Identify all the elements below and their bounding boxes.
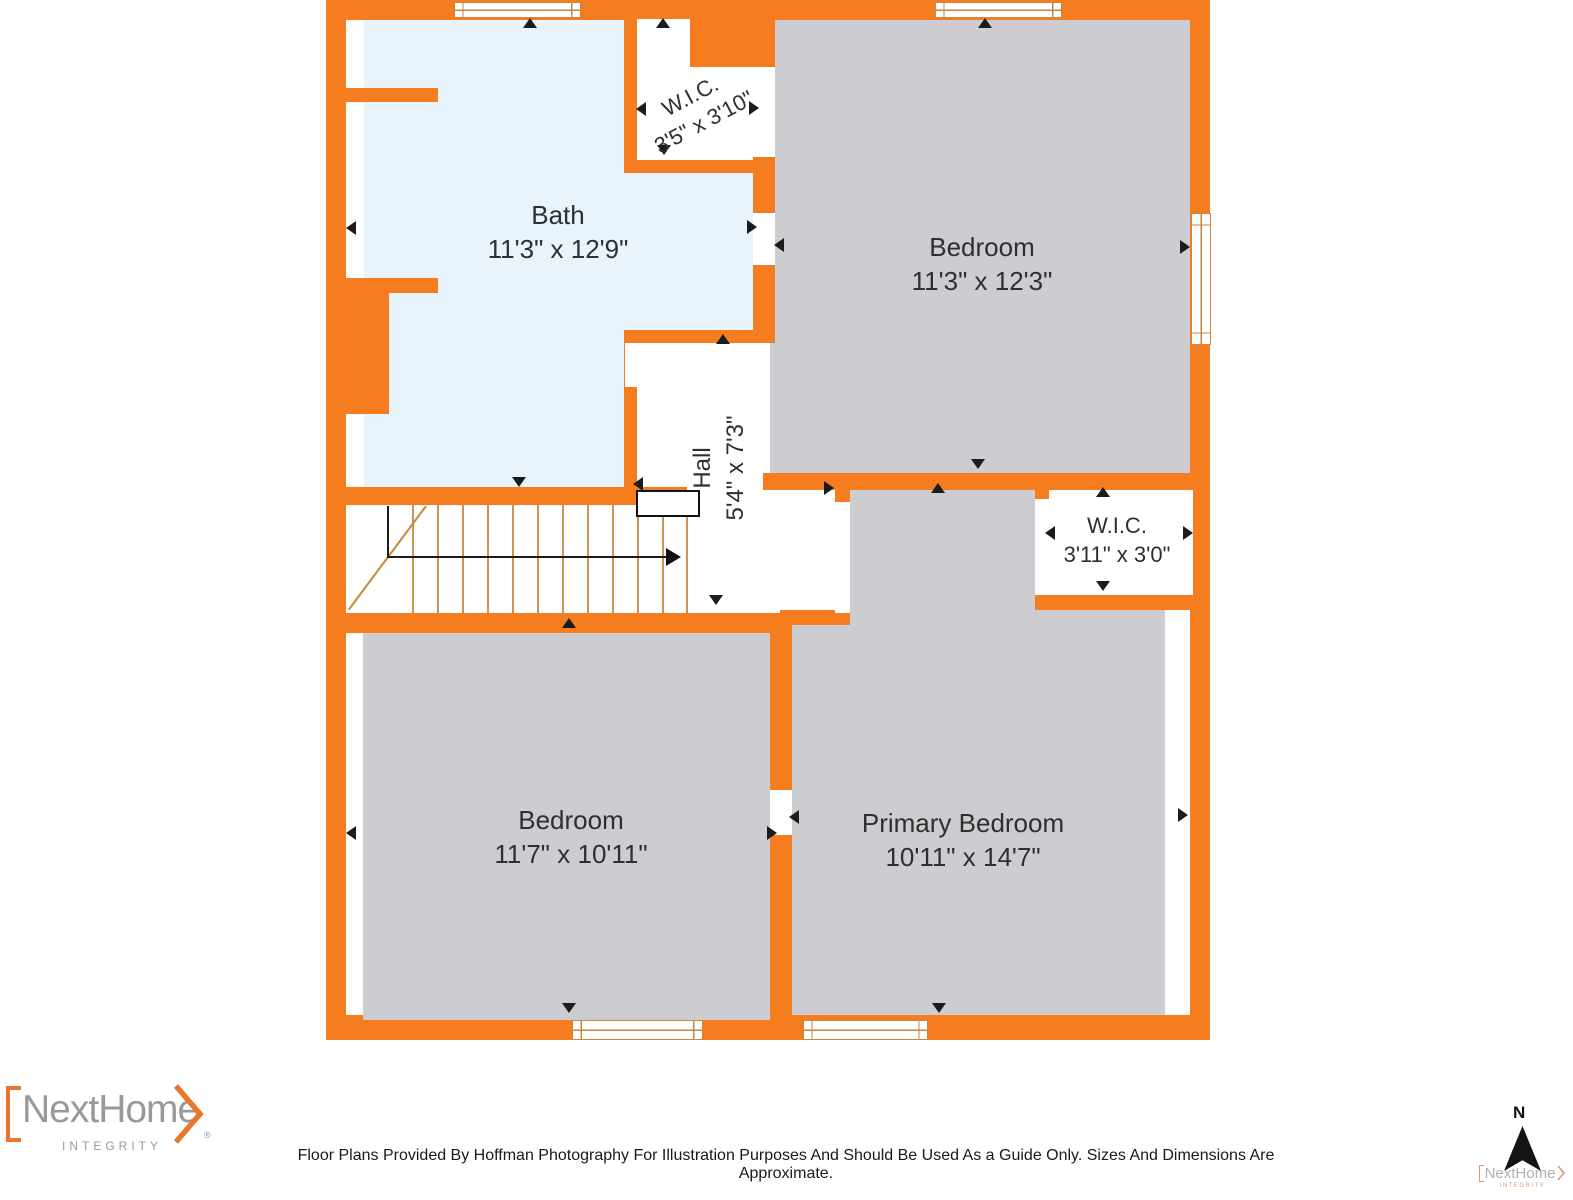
- stair-tread: [537, 505, 539, 613]
- stair-tread: [462, 505, 464, 613]
- logo-bracket-icon: [6, 1086, 21, 1142]
- wall-offset: [346, 633, 363, 1015]
- window-symbol: [803, 1020, 928, 1040]
- door-direction-arrow: [774, 238, 784, 252]
- door-direction-arrow: [346, 221, 356, 235]
- door-direction-arrow: [562, 1003, 576, 1013]
- door-direction-arrow: [931, 483, 945, 493]
- door-direction-arrow: [932, 1003, 946, 1013]
- door-direction-arrow: [633, 477, 643, 491]
- door-direction-arrow: [512, 477, 526, 487]
- wall-segment: [346, 88, 438, 102]
- door-direction-arrow: [767, 826, 777, 840]
- stair-direction-arrowhead: [666, 548, 681, 566]
- window-symbol: [454, 2, 581, 18]
- door-direction-arrow: [716, 334, 730, 344]
- room-dims: 11'7" x 10'11": [421, 837, 721, 871]
- stair-tread: [437, 505, 439, 613]
- stair-tread: [637, 505, 639, 613]
- room-label-bedroom-bl: Bedroom 11'7" x 10'11": [421, 803, 721, 871]
- room-label-bath: Bath 11'3" x 12'9": [408, 198, 708, 266]
- room-label-primary-bedroom: Primary Bedroom 10'11" x 14'7": [813, 806, 1113, 874]
- wall-segment: [753, 265, 775, 330]
- room-name: Primary Bedroom: [813, 806, 1113, 840]
- room-label-wic-right: W.I.C. 3'11" x 3'0": [987, 511, 1247, 569]
- stairs-floor: [346, 505, 687, 613]
- wall-segment: [1035, 595, 1190, 610]
- stair-tread: [562, 505, 564, 613]
- wall-segment: [753, 157, 775, 213]
- door-direction-arrow: [562, 618, 576, 628]
- watermark-tagline: INTEGRITY: [1472, 1183, 1573, 1189]
- room-dims: 11'3" x 12'3": [832, 264, 1132, 298]
- door-opening: [835, 502, 850, 613]
- nexthome-watermark: NextHome INTEGRITY: [1472, 1164, 1573, 1189]
- floor-plan-page: Bath 11'3" x 12'9" W.I.C. 3'5" x 3'10" B…: [0, 0, 1573, 1200]
- logo-chevron-icon: [172, 1082, 206, 1146]
- watermark-brand-text: NextHome: [1485, 1165, 1556, 1182]
- door-direction-arrow: [523, 18, 537, 28]
- door-direction-arrow: [824, 481, 834, 495]
- window-symbol: [935, 2, 1062, 18]
- wall-segment: [835, 490, 850, 502]
- watermark-chevron-icon: [1556, 1164, 1566, 1182]
- wall-segment: [625, 330, 775, 343]
- room-name: Bath: [408, 198, 708, 232]
- wall-segment: [625, 387, 637, 490]
- door-direction-arrow: [1096, 581, 1110, 591]
- window-symbol: [572, 1020, 703, 1040]
- door-direction-arrow: [747, 220, 757, 234]
- door-direction-arrow: [1178, 808, 1188, 822]
- door-direction-arrow: [346, 826, 356, 840]
- logo-tagline: INTEGRITY: [62, 1139, 162, 1153]
- stair-line: [387, 506, 389, 557]
- floor-plan: [0, 0, 1573, 1200]
- door-direction-arrow: [1180, 240, 1190, 254]
- watermark-bracket-icon: [1479, 1165, 1484, 1182]
- door-direction-arrow: [978, 18, 992, 28]
- door-direction-arrow: [971, 459, 985, 469]
- compass-north-label: N: [1513, 1103, 1525, 1123]
- door-direction-arrow: [709, 595, 723, 605]
- stair-tread: [487, 505, 489, 613]
- room-name: Hall: [686, 358, 719, 578]
- room-label-hall: Hall 5'4" x 7'3": [686, 358, 752, 578]
- stair-tread: [662, 505, 664, 613]
- door-direction-arrow: [1096, 487, 1110, 497]
- room-name: Bedroom: [832, 230, 1132, 264]
- window-symbol: [1191, 213, 1211, 345]
- stair-tread: [512, 505, 514, 613]
- door-direction-arrow: [656, 18, 670, 28]
- room-name: Bedroom: [421, 803, 721, 837]
- stair-direction-line: [387, 556, 668, 558]
- wall-segment: [1035, 490, 1049, 499]
- room-dims: 3'11" x 3'0": [987, 540, 1247, 569]
- room-dims: 10'11" x 14'7": [813, 840, 1113, 874]
- chimney-block: [326, 293, 389, 414]
- stair-tread: [587, 505, 589, 613]
- wall-segment: [346, 278, 438, 293]
- logo-registered-mark: ®: [204, 1130, 211, 1140]
- room-name: W.I.C.: [987, 511, 1247, 540]
- room-label-bedroom-tr: Bedroom 11'3" x 12'3": [832, 230, 1132, 298]
- door-direction-arrow: [789, 810, 799, 824]
- stair-tread: [612, 505, 614, 613]
- room-dims: 5'4" x 7'3": [719, 358, 752, 578]
- room-dims: 11'3" x 12'9": [408, 232, 708, 266]
- disclaimer-text: Floor Plans Provided By Hoffman Photogra…: [281, 1147, 1291, 1183]
